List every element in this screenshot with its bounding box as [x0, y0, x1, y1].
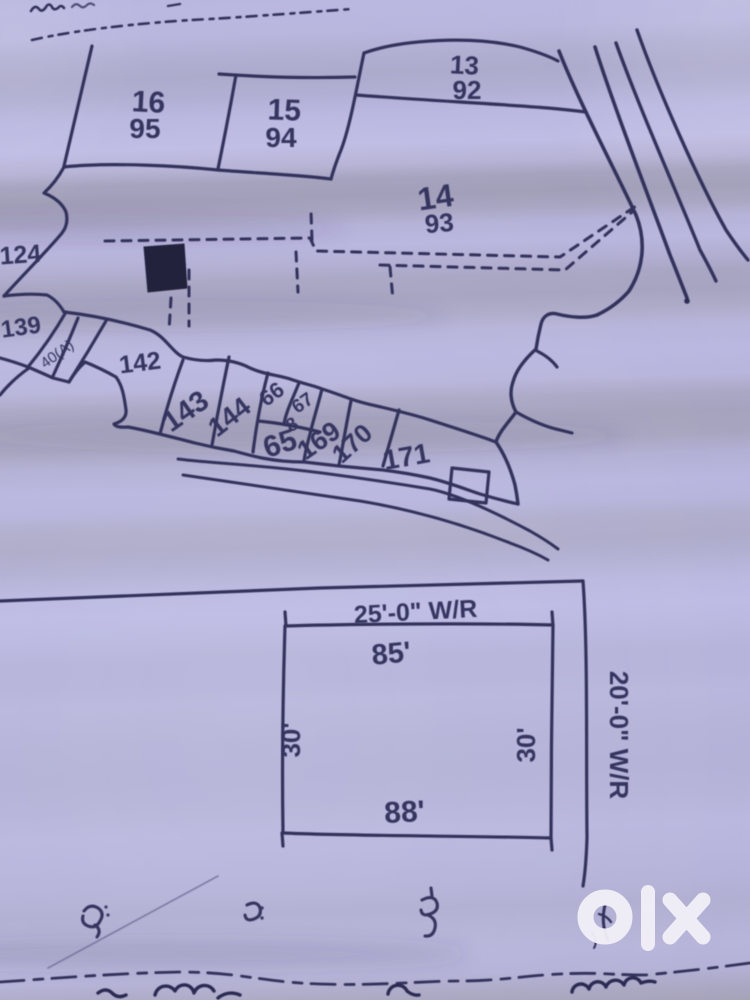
svg-text:20'-0" W/R: 20'-0" W/R [604, 671, 634, 800]
svg-text:124: 124 [0, 240, 42, 271]
svg-text:88': 88' [383, 795, 425, 830]
svg-text:30': 30' [276, 722, 306, 757]
svg-text:85': 85' [370, 636, 412, 671]
svg-text:94: 94 [265, 122, 297, 153]
svg-text:30': 30' [511, 727, 541, 762]
svg-text:139: 139 [0, 311, 43, 343]
svg-text:95: 95 [129, 113, 160, 144]
svg-text:142: 142 [118, 347, 163, 380]
svg-text:93: 93 [424, 207, 455, 239]
svg-text:92: 92 [453, 75, 482, 105]
